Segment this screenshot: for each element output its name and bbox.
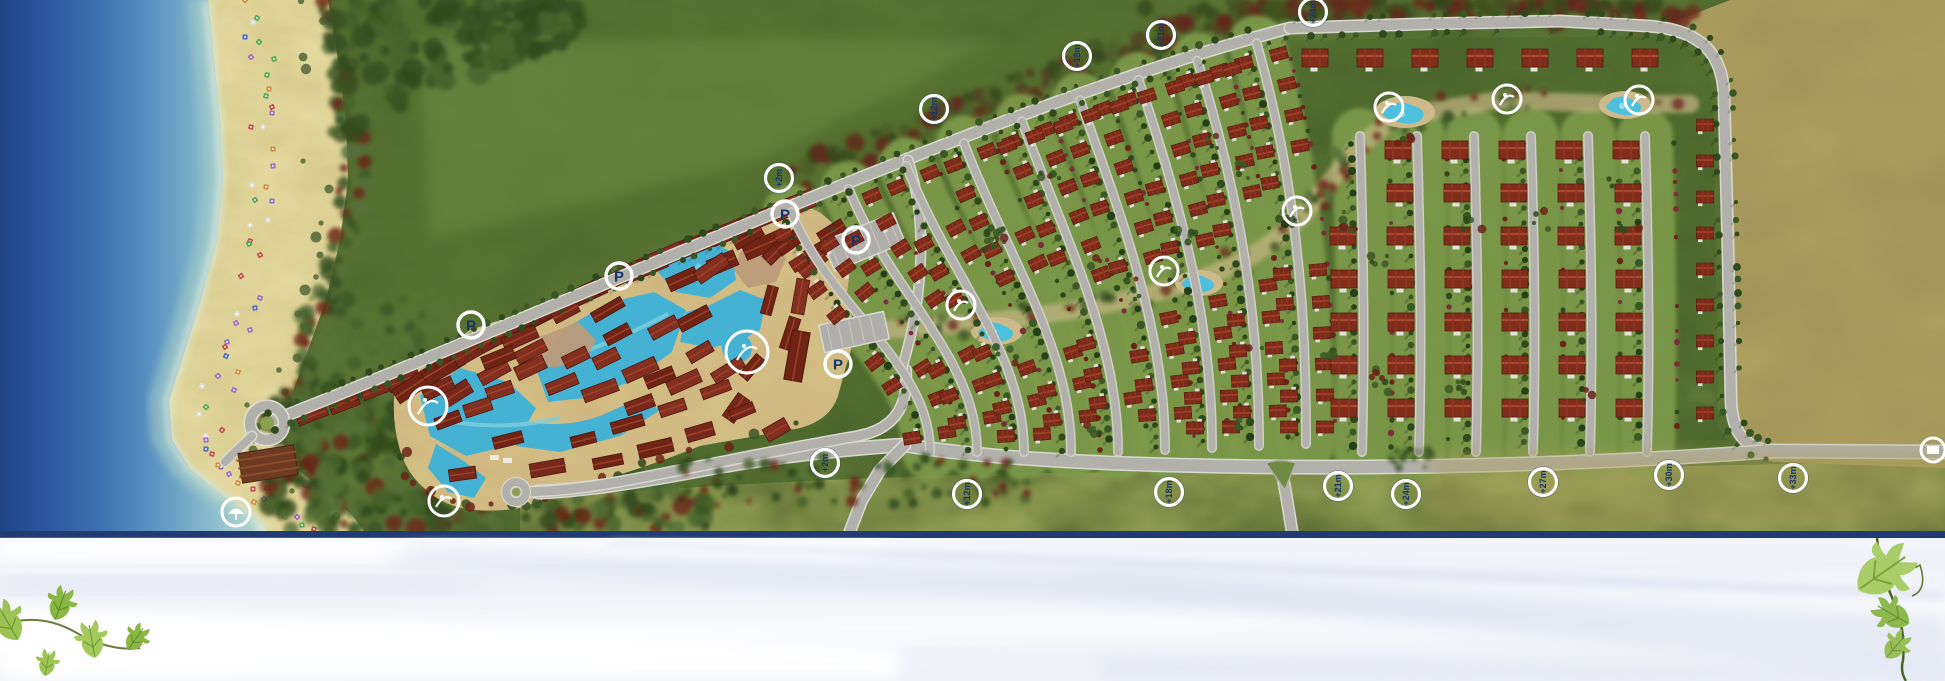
- svg-text:+18m: +18m: [1164, 480, 1174, 503]
- svg-text:P: P: [833, 357, 843, 374]
- svg-text:+12m: +12m: [962, 482, 972, 505]
- svg-text:+21m: +21m: [1156, 23, 1166, 46]
- svg-text:P: P: [466, 318, 476, 335]
- svg-text:+30m: +30m: [1664, 463, 1674, 486]
- svg-text:P: P: [614, 269, 624, 286]
- svg-text:+12m: +12m: [929, 97, 939, 120]
- svg-text:+21m: +21m: [1333, 474, 1343, 497]
- svg-text:P: P: [780, 207, 790, 224]
- svg-text:+2m: +2m: [820, 454, 830, 472]
- svg-text:+2m: +2m: [774, 169, 784, 187]
- svg-text:P: P: [851, 233, 861, 250]
- svg-text:+24m: +24m: [1401, 482, 1411, 505]
- svg-text:+24m: +24m: [1308, 0, 1318, 23]
- svg-text:+33m: +33m: [1788, 466, 1798, 489]
- svg-text:+18m: +18m: [1072, 44, 1082, 67]
- svg-text:+27m: +27m: [1538, 470, 1548, 493]
